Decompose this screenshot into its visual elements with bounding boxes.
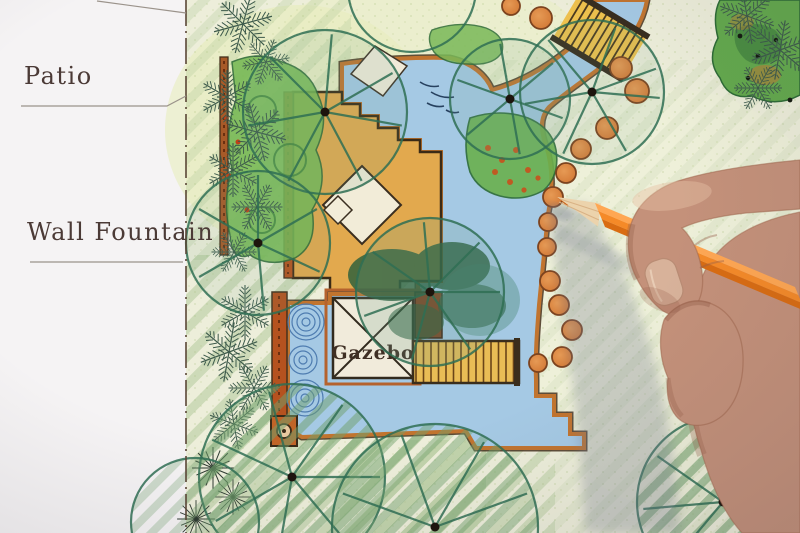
photo-vignette [0,0,800,533]
landscape-plan-photo: Gazebo [0,0,800,533]
